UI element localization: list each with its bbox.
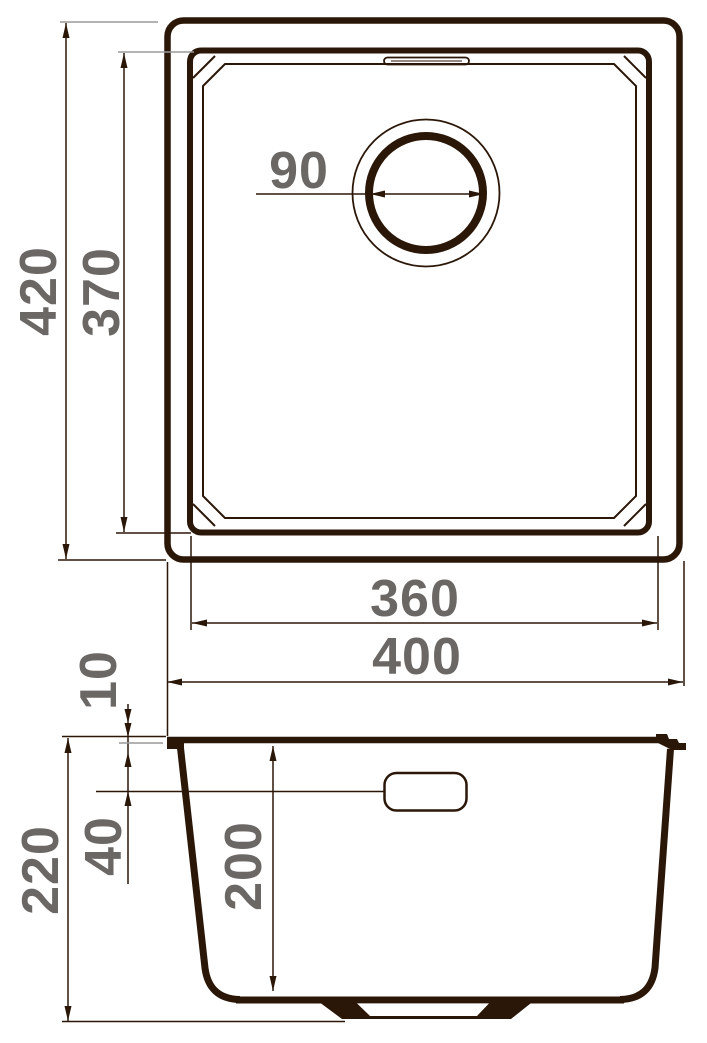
label-360: 360 xyxy=(370,570,460,628)
label-90: 90 xyxy=(269,142,329,200)
label-220: 220 xyxy=(12,825,70,915)
top-view xyxy=(168,21,680,560)
label-10: 10 xyxy=(70,650,128,710)
section-right-step xyxy=(656,734,686,750)
sink-outer-rim xyxy=(168,21,680,560)
overflow-slot-section xyxy=(385,773,467,811)
corner-chamfer-lines xyxy=(193,56,646,526)
drain-ring xyxy=(369,136,483,250)
section-left-lip xyxy=(167,737,184,749)
bowl-opening-edge xyxy=(190,51,649,533)
label-400: 400 xyxy=(372,628,462,686)
section-drain-recess xyxy=(357,1003,489,1016)
extension-lines-dark xyxy=(58,533,684,736)
top-view-dimensions xyxy=(58,22,684,736)
dimension-labels: 420 370 90 360 400 10 220 40 200 xyxy=(10,142,462,915)
section-right-wall xyxy=(620,749,671,1000)
drawing-svg: 420 370 90 360 400 10 220 40 200 xyxy=(0,0,707,1043)
label-420: 420 xyxy=(10,246,68,336)
label-370: 370 xyxy=(73,247,131,337)
bowl-floor-outline xyxy=(203,64,636,518)
sink-technical-drawing: 420 370 90 360 400 10 220 40 200 xyxy=(0,0,707,1043)
label-200: 200 xyxy=(215,821,273,911)
label-40: 40 xyxy=(75,816,133,876)
